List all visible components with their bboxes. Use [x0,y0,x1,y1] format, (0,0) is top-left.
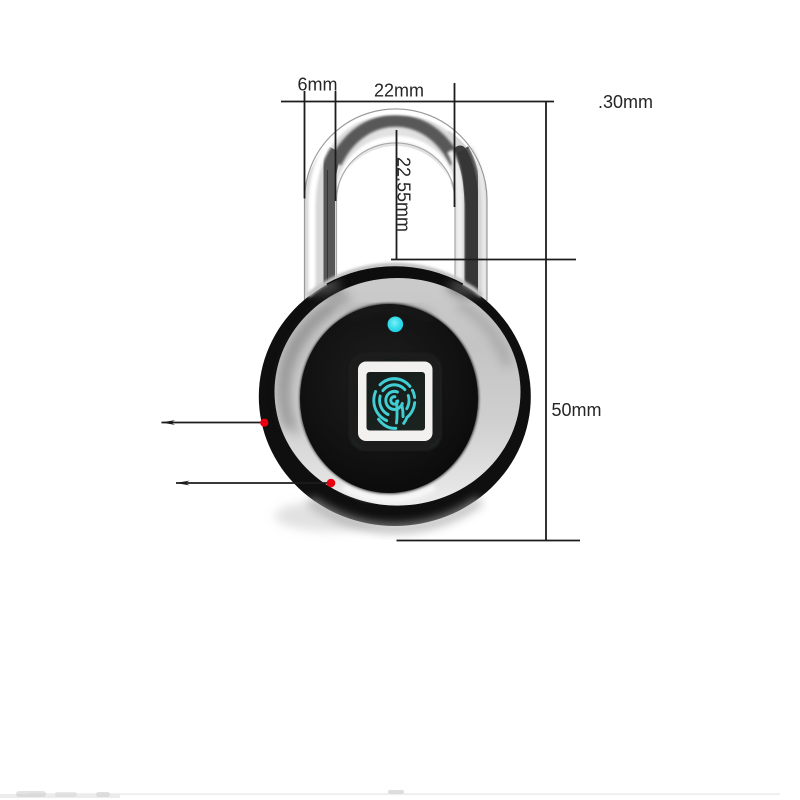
svg-text:22mm: 22mm [374,81,424,101]
svg-text:.30mm: .30mm [598,92,653,112]
svg-text:22.55mm: 22.55mm [394,157,414,232]
svg-text:50mm: 50mm [552,400,602,420]
svg-text:6mm: 6mm [298,75,338,95]
